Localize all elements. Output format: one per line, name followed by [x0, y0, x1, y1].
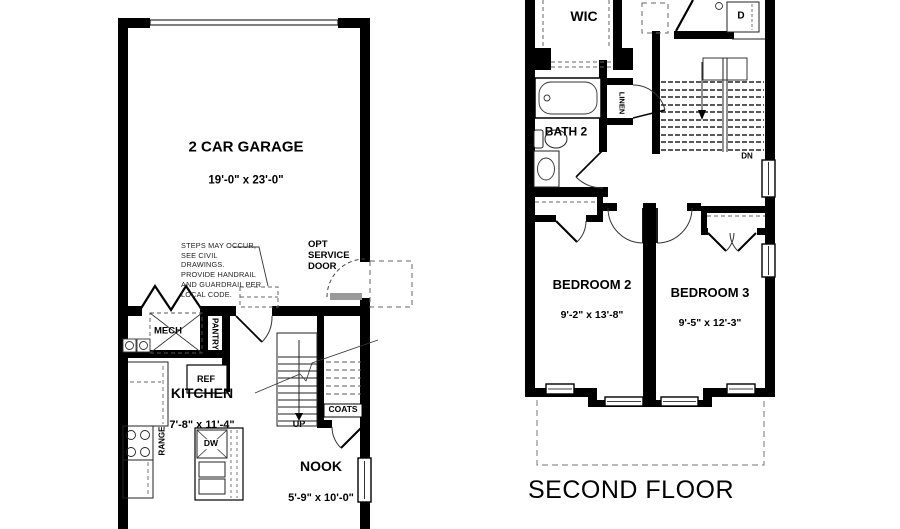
bedroom3-closet [707, 216, 765, 251]
service-door-threshold [330, 293, 362, 300]
bedroom3-name: BEDROOM 3 [671, 286, 750, 301]
second-floor-title: SECOND FLOOR [528, 476, 734, 505]
kitchen-label: KITCHEN 7'-8" x 11'-4" [169, 368, 234, 450]
vanity-sink [534, 151, 559, 187]
up-label: UP [293, 419, 306, 429]
bedroom3-dims: 9'-5" x 12'-3" [671, 318, 750, 330]
nook-window [358, 458, 371, 502]
bedroom2-dims: 9'-2" x 13'-8" [553, 310, 632, 322]
attic-access-outline [642, 3, 668, 33]
window [727, 384, 755, 394]
window [546, 384, 574, 394]
dn-label: DN [741, 153, 753, 162]
floor-plan-drawing [0, 0, 900, 529]
window [605, 397, 643, 406]
window [762, 244, 775, 277]
garage-entry-door [236, 316, 272, 342]
garage-label: 2 CAR GARAGE 19'-0" x 23'-0" [188, 121, 303, 204]
linen-door [633, 85, 665, 118]
garage-dims: 19'-0" x 23'-0" [188, 174, 303, 187]
linen-label: LINEN [618, 92, 627, 115]
floor-plan-canvas: 2 CAR GARAGE 19'-0" x 23'-0" STEPS MAY O… [0, 0, 900, 529]
wic-label: WIC [570, 9, 597, 25]
kitchen-name: KITCHEN [169, 386, 234, 402]
stairs-up [277, 333, 317, 426]
range-label: RANGE [158, 427, 167, 456]
ceiling-light-icon [716, 3, 723, 10]
bedroom3-label: BEDROOM 3 9'-5" x 12'-3" [671, 268, 750, 348]
stoop-outline [370, 261, 412, 307]
floor-below-outline [537, 397, 764, 465]
window [762, 160, 775, 197]
stairs-down [661, 39, 765, 152]
kitchen-dims: 7'-8" x 11'-4" [169, 420, 234, 432]
bedroom2-name: BEDROOM 2 [553, 278, 632, 293]
window [661, 397, 698, 406]
steps-note: STEPS MAY OCCUR, SEE CIVIL DRAWINGS. PRO… [181, 241, 263, 299]
bath-door [576, 150, 603, 188]
garage-name: 2 CAR GARAGE [188, 139, 303, 156]
mech-label: MECH [154, 327, 182, 338]
bedroom3-door [657, 208, 692, 243]
pantry-label: PANTRY [211, 318, 220, 350]
coats-label: COATS [328, 405, 357, 415]
nook-name: NOOK [288, 459, 354, 475]
bedroom2-label: BEDROOM 2 9'-2" x 13'-8" [553, 260, 632, 340]
dryer-label: D [737, 10, 744, 21]
garage-door-header [150, 20, 338, 25]
second-floor-plan [525, 0, 775, 465]
nook-dims: 5'-9" x 10'-0" [288, 493, 354, 505]
bathtub [535, 78, 601, 118]
nook-label: NOOK 5'-9" x 10'-0" [288, 441, 354, 523]
laundry-door [676, 0, 693, 31]
bath-label: BATH 2 [545, 125, 587, 138]
service-door-label: OPT SERVICE DOOR [308, 240, 350, 273]
dishwasher-label: DW [202, 439, 220, 449]
bedroom2-door [608, 208, 643, 243]
